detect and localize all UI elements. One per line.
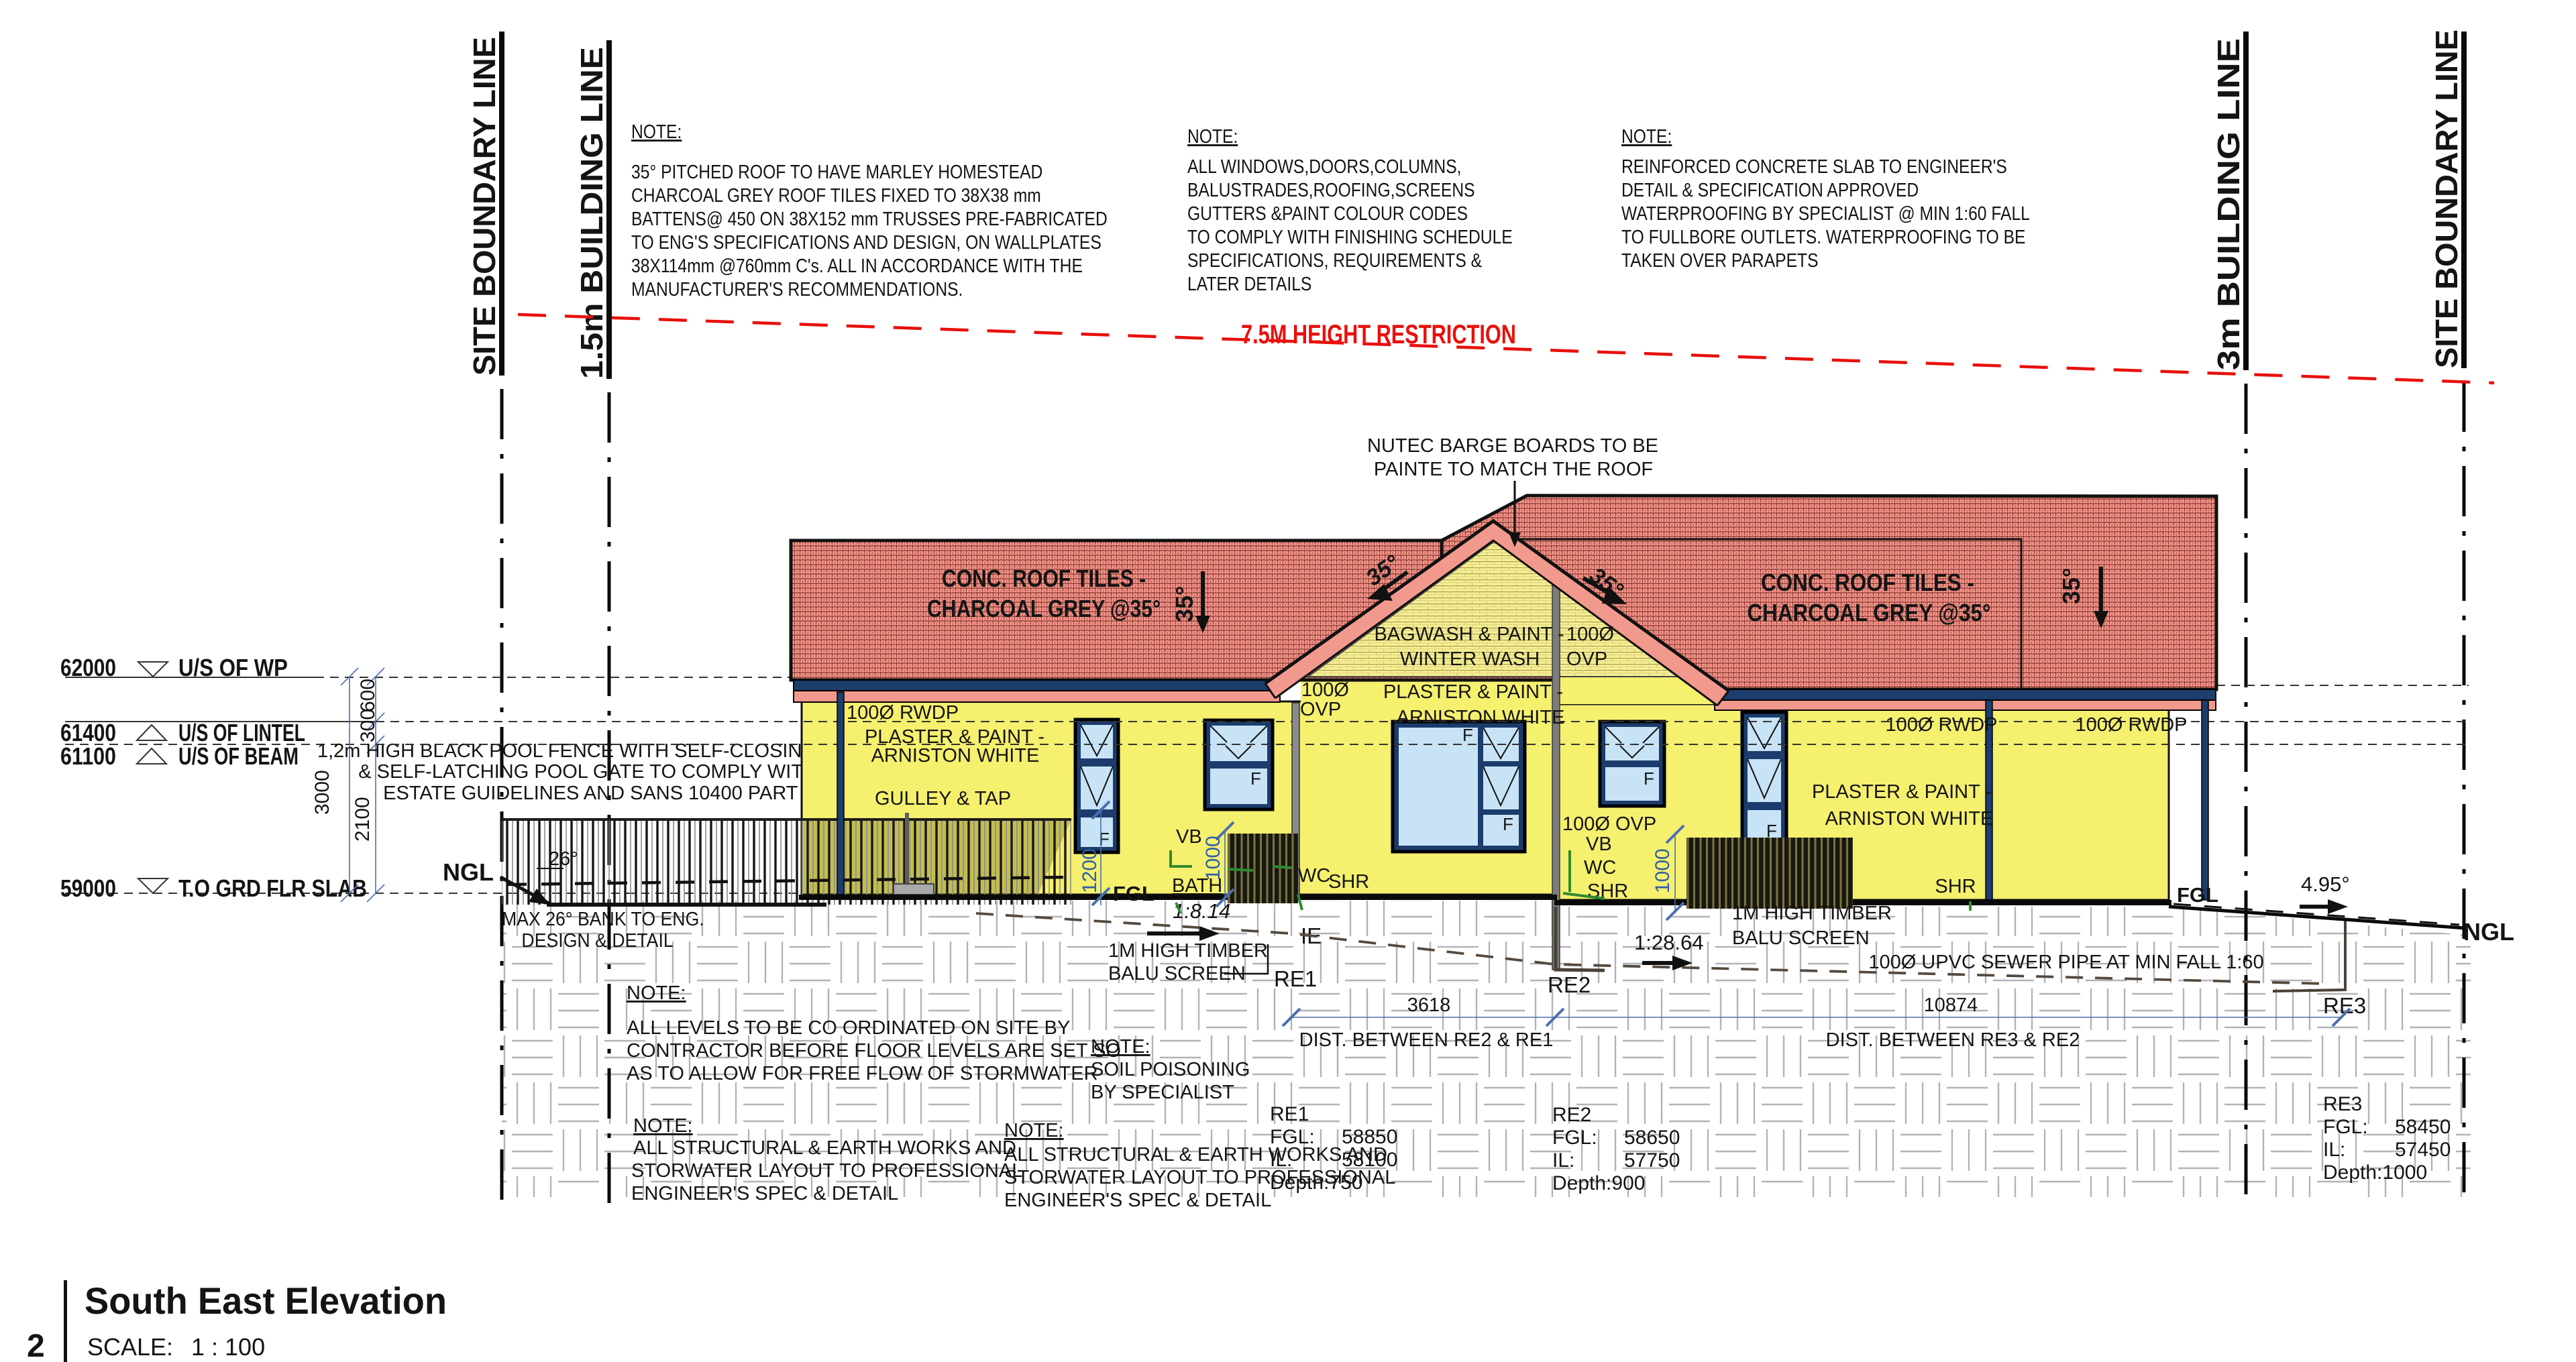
svg-text:ARNISTON WHITE: ARNISTON WHITE — [1825, 808, 1994, 830]
svg-text:BALUSTRADES,ROOFING,SCREENS: BALUSTRADES,ROOFING,SCREENS — [1187, 179, 1475, 201]
svg-text:F: F — [1644, 769, 1654, 789]
svg-text:RE2: RE2 — [1552, 1104, 1591, 1126]
svg-text:DESIGN & DETAIL: DESIGN & DETAIL — [521, 929, 673, 951]
svg-text:1:8.14: 1:8.14 — [1173, 899, 1230, 923]
svg-text:57750: 57750 — [1624, 1149, 1680, 1172]
svg-text:OVP: OVP — [1566, 648, 1607, 670]
svg-text:35° PITCHED ROOF TO HAVE MARLE: 35° PITCHED ROOF TO HAVE MARLEY HOMESTEA… — [631, 161, 1042, 182]
svg-text:100Ø UPVC SEWER PIPE AT MIN FA: 100Ø UPVC SEWER PIPE AT MIN FALL 1:60 — [1868, 952, 2263, 973]
svg-text:DETAIL & SPECIFICATION APPROVE: DETAIL & SPECIFICATION APPROVED — [1621, 179, 1919, 201]
svg-text:100Ø OVP: 100Ø OVP — [1562, 813, 1656, 835]
svg-text:FGL: FGL — [1113, 882, 1155, 905]
svg-text:1M HIGH TIMBER: 1M HIGH TIMBER — [1732, 903, 1892, 924]
svg-text:58850: 58850 — [1342, 1126, 1397, 1148]
svg-text:REINFORCED CONCRETE SLAB TO EN: REINFORCED CONCRETE SLAB TO ENGINEER'S — [1621, 156, 2007, 177]
svg-text:300: 300 — [357, 709, 379, 742]
svg-text:SITE BOUNDARY LINE: SITE BOUNDARY LINE — [467, 37, 502, 376]
svg-text:100Ø: 100Ø — [1566, 624, 1614, 645]
svg-text:CHARCOAL GREY ROOF TILES FIXED: CHARCOAL GREY ROOF TILES FIXED TO 38X38 … — [631, 184, 1041, 206]
svg-text:SOIL POISONING: SOIL POISONING — [1091, 1059, 1250, 1080]
svg-text:NOTE:: NOTE: — [631, 121, 682, 142]
svg-text:PAINTE TO MATCH THE ROOF: PAINTE TO MATCH THE ROOF — [1374, 459, 1653, 480]
svg-text:SHR: SHR — [1587, 881, 1628, 902]
svg-text:TO ENG'S SPECIFICATIONS AND DE: TO ENG'S SPECIFICATIONS AND DESIGN, ON W… — [631, 231, 1102, 253]
svg-text:1,2m HIGH BLACK POOL FENCE WIT: 1,2m HIGH BLACK POOL FENCE WITH SELF-CLO… — [317, 740, 817, 762]
svg-text:SHR: SHR — [1935, 876, 1976, 897]
svg-text:NUTEC BARGE BOARDS TO BE: NUTEC BARGE BOARDS TO BE — [1367, 435, 1658, 457]
svg-text:1200: 1200 — [1079, 848, 1101, 893]
svg-text:VB: VB — [1176, 826, 1202, 848]
svg-text:26°: 26° — [549, 848, 578, 870]
svg-text:57450: 57450 — [2395, 1139, 2451, 1161]
svg-text:10874: 10874 — [1924, 995, 1978, 1016]
svg-text:South East Elevation: South East Elevation — [85, 1280, 447, 1322]
svg-text:NOTE:: NOTE: — [1187, 125, 1238, 147]
svg-text:IL:: IL: — [2323, 1139, 2345, 1161]
svg-text:SHR: SHR — [1328, 871, 1369, 893]
svg-text:TO COMPLY WITH FINISHING SCHED: TO COMPLY WITH FINISHING SCHEDULE — [1187, 226, 1513, 247]
svg-text:100Ø: 100Ø — [1301, 679, 1349, 701]
svg-text:T.O GRD FLR SLAB: T.O GRD FLR SLAB — [178, 874, 367, 902]
svg-text:BALU SCREEN: BALU SCREEN — [1732, 927, 1870, 949]
svg-text:NGL: NGL — [2463, 918, 2514, 946]
svg-text:600: 600 — [357, 679, 379, 712]
svg-text:100Ø RWDP: 100Ø RWDP — [847, 702, 959, 724]
svg-text:1:28.64: 1:28.64 — [1634, 931, 1703, 954]
svg-text:BAGWASH & PAINT -: BAGWASH & PAINT - — [1374, 624, 1564, 645]
svg-text:F: F — [1503, 814, 1513, 834]
svg-text:Depth:750: Depth:750 — [1270, 1172, 1362, 1194]
svg-text:3m BUILDING LINE: 3m BUILDING LINE — [2211, 38, 2246, 370]
svg-text:ARNISTON WHITE: ARNISTON WHITE — [871, 745, 1040, 767]
svg-text:F: F — [1250, 769, 1261, 789]
svg-text:BATTENS@ 450 ON 38X152 mm TRUS: BATTENS@ 450 ON 38X152 mm TRUSSES PRE-FA… — [631, 208, 1108, 229]
svg-text:7.5M HEIGHT RESTRICTION: 7.5M HEIGHT RESTRICTION — [1241, 320, 1516, 349]
svg-text:DIST. BETWEEN RE2 & RE1: DIST. BETWEEN RE2 & RE1 — [1299, 1029, 1554, 1051]
svg-text:CHARCOAL GREY @35°: CHARCOAL GREY @35° — [1748, 599, 1991, 626]
svg-text:CONC. ROOF TILES -: CONC. ROOF TILES - — [1761, 569, 1974, 596]
svg-text:4.95°: 4.95° — [2301, 872, 2350, 896]
svg-text:ESTATE GUIDELINES AND SANS 104: ESTATE GUIDELINES AND SANS 10400 PART D — [383, 783, 817, 804]
svg-text:CONC. ROOF TILES -: CONC. ROOF TILES - — [942, 565, 1146, 592]
svg-text:WINTER WASH: WINTER WASH — [1400, 648, 1540, 670]
svg-text:BY SPECIALIST: BY SPECIALIST — [1091, 1082, 1234, 1103]
svg-text:DIST. BETWEEN RE3 & RE2: DIST. BETWEEN RE3 & RE2 — [1826, 1029, 2080, 1051]
svg-text:ALL WINDOWS,DOORS,COLUMNS,: ALL WINDOWS,DOORS,COLUMNS, — [1187, 156, 1461, 177]
svg-text:RE3: RE3 — [2323, 1093, 2362, 1115]
svg-text:GULLEY & TAP: GULLEY & TAP — [875, 788, 1011, 809]
svg-text:1 : 100: 1 : 100 — [191, 1333, 265, 1361]
svg-text:LATER DETAILS: LATER DETAILS — [1187, 273, 1311, 294]
svg-text:3618: 3618 — [1407, 995, 1451, 1016]
svg-text:2100: 2100 — [352, 797, 374, 842]
svg-text:WATERPROOFING BY SPECIALIST @: WATERPROOFING BY SPECIALIST @ MIN 1:60 F… — [1621, 203, 2030, 224]
svg-text:RE2: RE2 — [1548, 972, 1591, 997]
svg-text:RE1: RE1 — [1270, 1103, 1309, 1125]
svg-text:59000: 59000 — [60, 874, 116, 902]
svg-text:ALL LEVELS TO BE CO ORDINATED: ALL LEVELS TO BE CO ORDINATED ON SITE BY — [627, 1017, 1070, 1039]
svg-text:ARNISTON WHITE: ARNISTON WHITE — [1397, 707, 1565, 728]
svg-text:Depth:900: Depth:900 — [1552, 1172, 1645, 1194]
svg-text:100Ø RWDP: 100Ø RWDP — [1885, 714, 1997, 736]
svg-text:NGL: NGL — [443, 858, 494, 886]
svg-text:& SELF-LATCHING POOL GATE TO C: & SELF-LATCHING POOL GATE TO COMPLY WITH — [358, 761, 817, 783]
svg-text:OVP: OVP — [1300, 699, 1341, 720]
svg-text:FGL:: FGL: — [2323, 1116, 2368, 1138]
svg-text:PLASTER & PAINT -: PLASTER & PAINT - — [1812, 781, 1992, 803]
svg-text:MANUFACTURER'S RECOMMENDATIONS: MANUFACTURER'S RECOMMENDATIONS. — [631, 278, 963, 300]
svg-text:MAX 26° BANK TO ENG.: MAX 26° BANK TO ENG. — [502, 908, 704, 929]
svg-text:1M HIGH TIMBER: 1M HIGH TIMBER — [1108, 940, 1268, 962]
svg-text:VB: VB — [1586, 834, 1612, 855]
svg-text:NOTE:: NOTE: — [627, 982, 686, 1004]
svg-text:NOTE:: NOTE: — [1621, 125, 1672, 147]
svg-text:STORWATER LAYOUT TO PROFESSION: STORWATER LAYOUT TO PROFESSIONAL — [631, 1160, 1022, 1182]
svg-text:1.5m BUILDING LINE: 1.5m BUILDING LINE — [574, 47, 609, 379]
svg-text:58450: 58450 — [2395, 1116, 2451, 1138]
svg-text:NOTE:: NOTE: — [633, 1115, 693, 1137]
svg-text:FGL:: FGL: — [1552, 1127, 1597, 1149]
svg-text:100Ø RWDP: 100Ø RWDP — [2075, 714, 2187, 736]
svg-text:GUTTERS &PAINT COLOUR CODES: GUTTERS &PAINT COLOUR CODES — [1187, 203, 1468, 224]
svg-text:35°: 35° — [2057, 568, 2085, 604]
svg-text:ENGINEER'S SPEC & DETAIL: ENGINEER'S SPEC & DETAIL — [1004, 1190, 1271, 1211]
svg-text:ALL STRUCTURAL & EARTH WORKS A: ALL STRUCTURAL & EARTH WORKS AND — [1004, 1144, 1387, 1166]
svg-text:35°: 35° — [1171, 586, 1198, 622]
svg-text:CHARCOAL GREY @35°: CHARCOAL GREY @35° — [927, 595, 1161, 622]
svg-text:SCALE:: SCALE: — [87, 1333, 173, 1361]
svg-text:IL:: IL: — [1270, 1149, 1292, 1171]
svg-text:ENGINEER'S SPEC & DETAIL: ENGINEER'S SPEC & DETAIL — [631, 1183, 898, 1204]
svg-text:IL:: IL: — [1552, 1149, 1574, 1172]
svg-text:BATH: BATH — [1172, 875, 1222, 897]
svg-text:AS TO ALLOW FOR FREE FLOW OF S: AS TO ALLOW FOR FREE FLOW OF STORMWATER — [627, 1063, 1098, 1084]
svg-text:RE1: RE1 — [1274, 966, 1317, 991]
svg-text:1000: 1000 — [1652, 848, 1674, 893]
svg-text:WC: WC — [1298, 865, 1330, 887]
svg-text:38X114mm @760mm C's. ALL IN AC: 38X114mm @760mm C's. ALL IN ACCORDANCE W… — [631, 255, 1083, 276]
svg-text:TO FULLBORE OUTLETS. WATERPROO: TO FULLBORE OUTLETS. WATERPROOFING TO BE — [1621, 226, 2025, 247]
svg-text:1000: 1000 — [1202, 836, 1224, 881]
svg-text:CONTRACTOR BEFORE FLOOR LEVELS: CONTRACTOR BEFORE FLOOR LEVELS ARE SET S… — [627, 1040, 1121, 1062]
svg-text:58650: 58650 — [1624, 1127, 1680, 1149]
svg-text:U/S OF BEAM: U/S OF BEAM — [178, 742, 299, 770]
svg-text:SPECIFICATIONS, REQUIREMENTS: SPECIFICATIONS, REQUIREMENTS & — [1187, 249, 1482, 271]
svg-text:TAKEN OVER PARAPETS: TAKEN OVER PARAPETS — [1621, 249, 1819, 271]
svg-text:WC: WC — [1584, 857, 1616, 878]
svg-text:NOTE:: NOTE: — [1004, 1120, 1064, 1141]
svg-text:61100: 61100 — [60, 742, 116, 770]
svg-text:58100: 58100 — [1342, 1149, 1397, 1171]
svg-text:3000: 3000 — [311, 770, 333, 815]
svg-text:FGL:: FGL: — [1270, 1126, 1315, 1148]
svg-text:62000: 62000 — [60, 654, 116, 681]
svg-text:FGL: FGL — [2177, 883, 2218, 907]
svg-text:Depth:1000: Depth:1000 — [2323, 1161, 2427, 1184]
svg-text:U/S OF WP: U/S OF WP — [178, 654, 288, 681]
svg-text:SITE BOUNDARY LINE: SITE BOUNDARY LINE — [2429, 30, 2464, 368]
svg-text:ALL STRUCTURAL & EARTH WORKS A: ALL STRUCTURAL & EARTH WORKS AND — [633, 1137, 1016, 1159]
svg-text:PLASTER & PAINT -: PLASTER & PAINT - — [1383, 681, 1563, 703]
svg-text:NOTE:: NOTE: — [1091, 1036, 1150, 1058]
svg-text:2: 2 — [27, 1328, 45, 1362]
